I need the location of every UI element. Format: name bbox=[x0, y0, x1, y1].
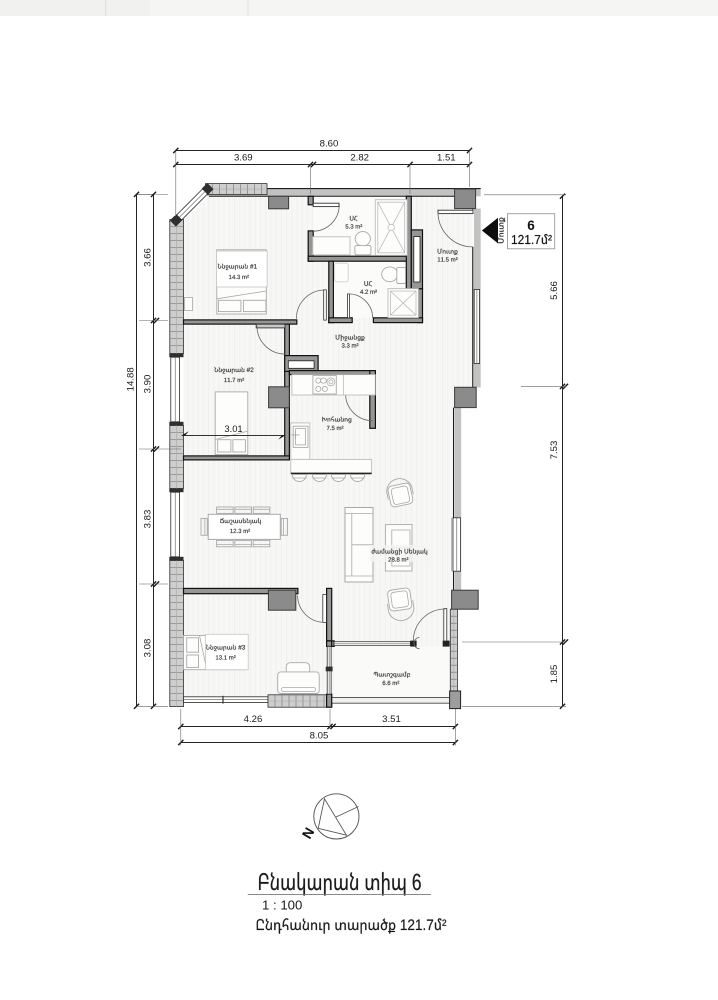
svg-text:8.05: 8.05 bbox=[310, 731, 329, 742]
svg-text:8.60: 8.60 bbox=[320, 139, 339, 150]
svg-text:3.66: 3.66 bbox=[142, 248, 153, 267]
svg-text:4.26: 4.26 bbox=[244, 714, 263, 725]
svg-text:1 : 100: 1 : 100 bbox=[262, 898, 302, 913]
svg-text:6: 6 bbox=[527, 218, 535, 233]
svg-text:3.83: 3.83 bbox=[142, 510, 153, 529]
svg-text:5.66: 5.66 bbox=[549, 281, 560, 300]
svg-text:7.53: 7.53 bbox=[549, 441, 560, 460]
svg-text:1.51: 1.51 bbox=[437, 152, 456, 163]
svg-text:3.08: 3.08 bbox=[142, 639, 153, 658]
svg-text:3.01: 3.01 bbox=[224, 423, 242, 434]
svg-text:1.85: 1.85 bbox=[549, 665, 560, 684]
svg-text:14.88: 14.88 bbox=[125, 367, 136, 391]
svg-text:3.69: 3.69 bbox=[234, 152, 253, 163]
svg-text:3.51: 3.51 bbox=[382, 714, 401, 725]
svg-text:2.82: 2.82 bbox=[350, 152, 369, 163]
svg-text:3.90: 3.90 bbox=[142, 375, 153, 394]
